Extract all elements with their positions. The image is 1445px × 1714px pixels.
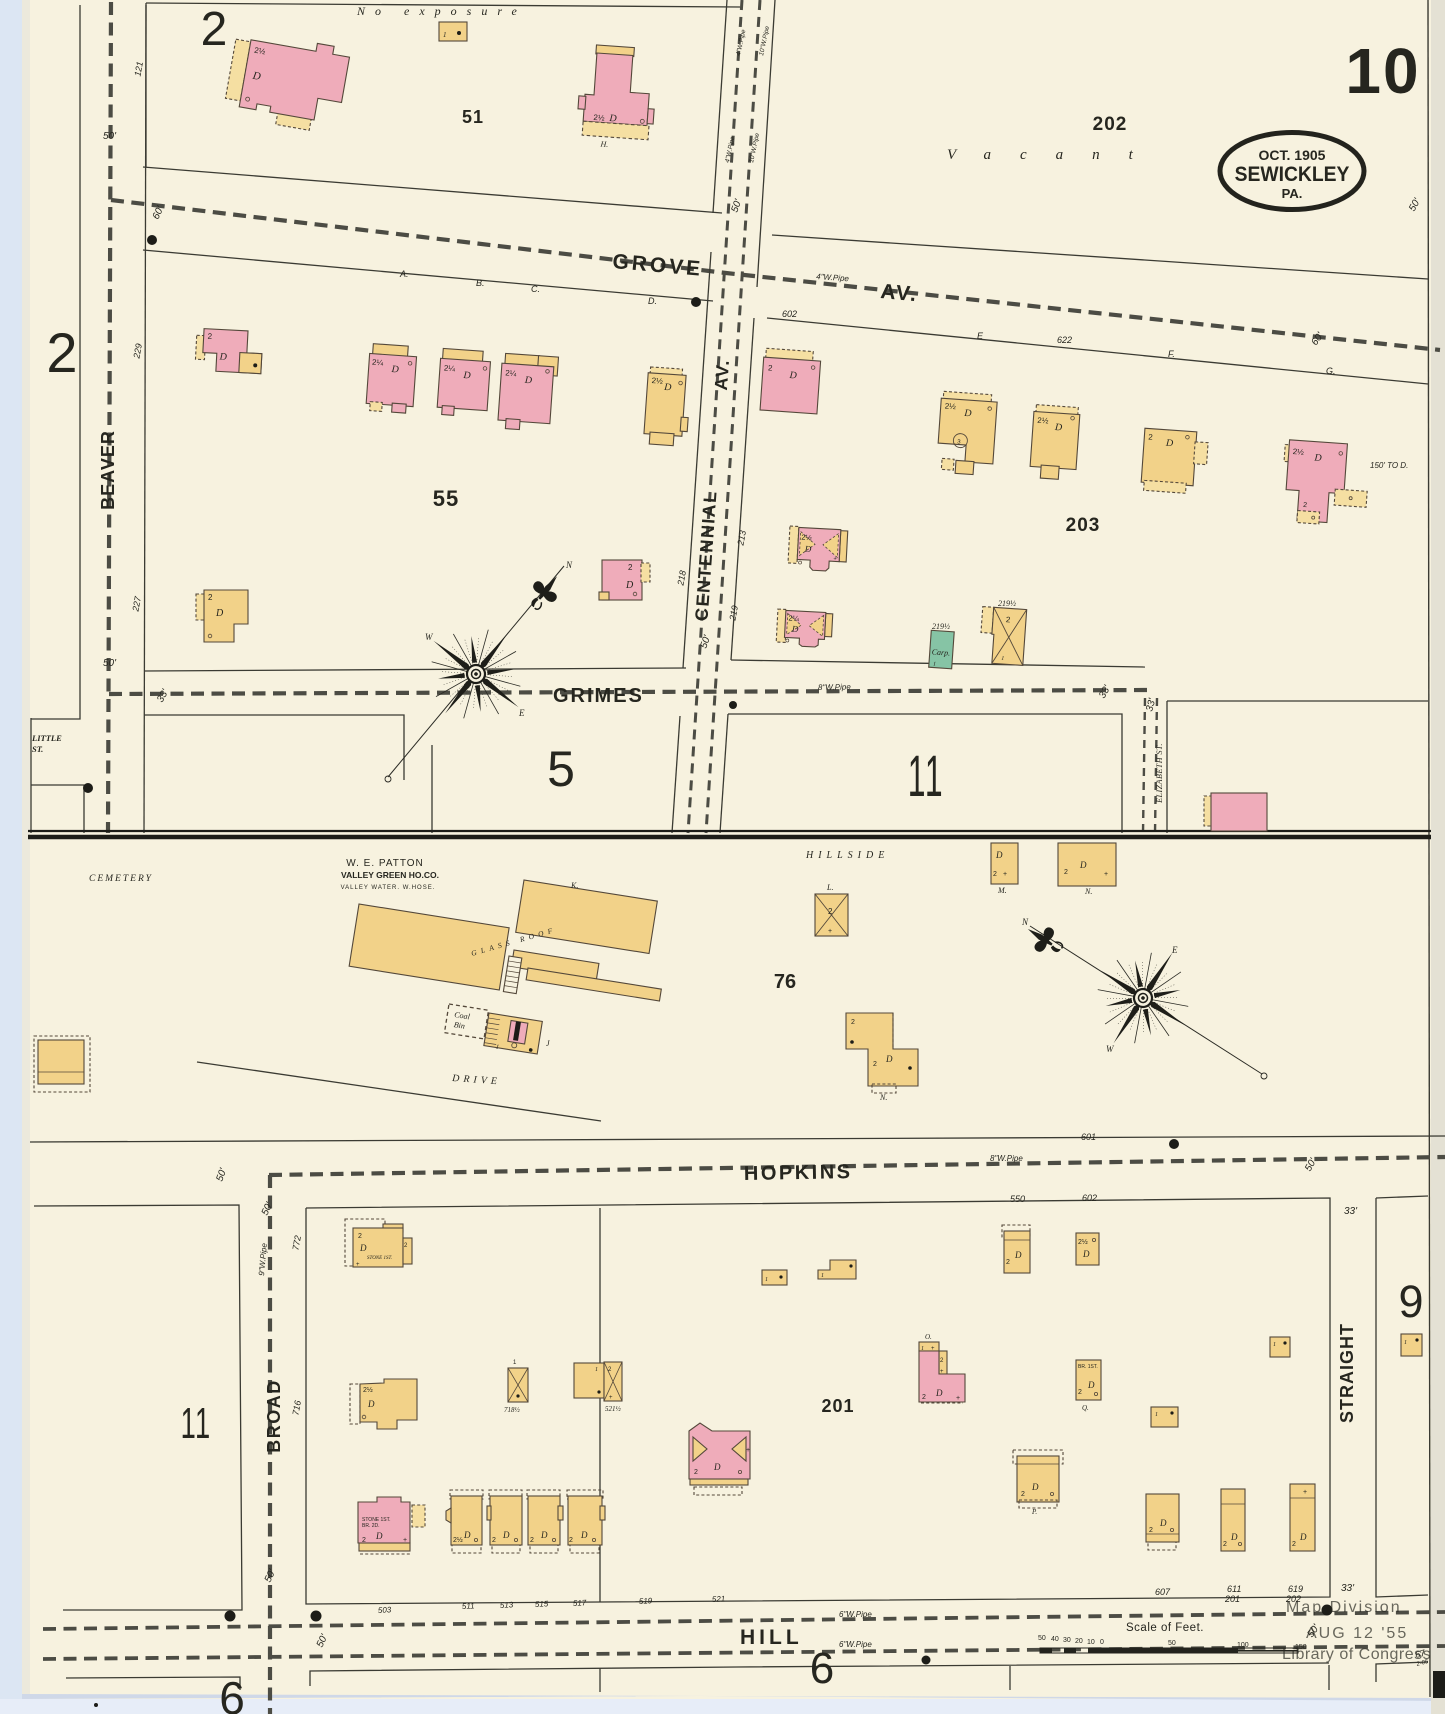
svg-text:2½: 2½	[944, 401, 956, 411]
svg-text:51: 51	[462, 107, 484, 127]
svg-text:2½: 2½	[1078, 1238, 1088, 1246]
svg-text:150' TO D.: 150' TO D.	[1370, 461, 1408, 470]
svg-text:SEWICKLEY: SEWICKLEY	[1235, 163, 1350, 186]
svg-text:2: 2	[208, 593, 213, 602]
svg-text:Library of Congress: Library of Congress	[1282, 1646, 1431, 1663]
svg-text:76: 76	[774, 971, 796, 993]
svg-text:D: D	[663, 382, 673, 394]
svg-text:2¼: 2¼	[444, 364, 456, 374]
svg-text:2½: 2½	[1037, 416, 1049, 426]
svg-text:201: 201	[1224, 1594, 1240, 1604]
svg-text:BROAD: BROAD	[264, 1379, 284, 1453]
svg-text:D: D	[462, 370, 472, 382]
svg-text:BR. 1ST.: BR. 1ST.	[1078, 1364, 1098, 1370]
svg-text:+: +	[931, 1346, 935, 1352]
svg-text:BR. 2D.: BR. 2D.	[362, 1523, 380, 1529]
svg-text:511: 511	[462, 1601, 475, 1611]
svg-text:E: E	[518, 708, 525, 718]
svg-text:+: +	[609, 1395, 613, 1401]
svg-text:OCT. 1905: OCT. 1905	[1259, 147, 1326, 163]
svg-text:D: D	[1230, 1532, 1238, 1542]
svg-text:2: 2	[1064, 869, 1068, 876]
svg-text:STRAIGHT: STRAIGHT	[1337, 1323, 1357, 1423]
svg-text:H.: H.	[599, 139, 608, 149]
svg-text:D: D	[935, 1388, 943, 1398]
svg-text:201: 201	[821, 1396, 854, 1416]
svg-text:521½: 521½	[605, 1405, 622, 1413]
svg-text:219½: 219½	[998, 599, 1016, 608]
svg-text:+: +	[1003, 871, 1007, 878]
svg-text:Carp.: Carp.	[931, 647, 950, 657]
svg-text:11: 11	[181, 1398, 212, 1447]
svg-text:LITTLE: LITTLE	[31, 733, 62, 743]
svg-text:D.: D.	[648, 296, 657, 306]
svg-text:D: D	[995, 850, 1003, 860]
svg-text:10: 10	[1345, 35, 1420, 107]
svg-text:2: 2	[873, 1061, 877, 1068]
svg-text:Map Division: Map Division	[1286, 1599, 1402, 1616]
svg-text:0: 0	[1100, 1639, 1104, 1646]
svg-text:602: 602	[1082, 1193, 1097, 1203]
svg-text:6"W.Pipe: 6"W.Pipe	[839, 1610, 872, 1619]
svg-text:D: D	[502, 1530, 510, 1540]
svg-text:D: D	[580, 1530, 588, 1540]
svg-text:D: D	[215, 608, 224, 619]
svg-text:L.: L.	[826, 883, 833, 892]
svg-text:2: 2	[628, 563, 633, 572]
svg-text:6"W.Pipe: 6"W.Pipe	[839, 1640, 872, 1649]
svg-text:Q.: Q.	[1082, 1404, 1089, 1412]
svg-text:STONE 1ST.: STONE 1ST.	[367, 1256, 392, 1261]
svg-text:VALLEY GREEN HO.CO.: VALLEY GREEN HO.CO.	[341, 870, 439, 880]
svg-text:M.: M.	[997, 886, 1007, 895]
svg-text:Scale of Feet.: Scale of Feet.	[1126, 1622, 1204, 1634]
svg-text:33': 33'	[1341, 1583, 1355, 1594]
svg-text:N: N	[565, 560, 573, 570]
svg-text:55: 55	[433, 486, 459, 511]
svg-text:219½: 219½	[932, 622, 950, 631]
svg-text:503: 503	[378, 1605, 392, 1615]
svg-text:N.: N.	[1084, 887, 1092, 896]
svg-text:513: 513	[500, 1600, 514, 1610]
svg-text:2: 2	[694, 1469, 698, 1476]
svg-text:2: 2	[1223, 1541, 1227, 1548]
svg-text:202: 202	[1093, 114, 1128, 135]
svg-text:D: D	[1087, 1380, 1095, 1390]
svg-text:D: D	[885, 1054, 893, 1064]
svg-text:N: N	[1021, 917, 1029, 927]
svg-text:5: 5	[547, 741, 575, 797]
svg-text:VALLEY WATER. W.HOSE.: VALLEY WATER. W.HOSE.	[341, 885, 436, 891]
svg-text:1: 1	[1273, 1342, 1276, 1348]
svg-text:2: 2	[828, 907, 833, 916]
svg-text:517: 517	[573, 1598, 587, 1608]
svg-text:PA.: PA.	[1282, 186, 1303, 201]
svg-text:CEMETERY: CEMETERY	[89, 874, 153, 884]
svg-text:D: D	[540, 1530, 548, 1540]
svg-text:Bin: Bin	[453, 1020, 465, 1031]
svg-text:D: D	[804, 544, 813, 554]
svg-text:D: D	[218, 351, 228, 362]
svg-text:607: 607	[1155, 1587, 1171, 1597]
svg-text:D: D	[523, 375, 533, 387]
svg-text:1: 1	[1001, 656, 1004, 662]
svg-text:50': 50'	[103, 131, 117, 142]
svg-text:D: D	[1014, 1250, 1022, 1260]
svg-text:2¼: 2¼	[372, 358, 384, 368]
svg-text:2½: 2½	[593, 113, 605, 123]
svg-text:2½: 2½	[651, 376, 663, 386]
svg-text:No exposure: No exposure	[356, 4, 527, 18]
svg-text:G.: G.	[1326, 366, 1336, 376]
svg-text:ELIZABETH ST.: ELIZABETH ST.	[1155, 743, 1164, 804]
svg-text:2: 2	[358, 1233, 362, 1240]
svg-text:E: E	[977, 331, 984, 341]
svg-text:D: D	[1313, 453, 1323, 465]
svg-text:1: 1	[1404, 1340, 1407, 1346]
svg-text:2½: 2½	[363, 1386, 373, 1394]
svg-text:F.: F.	[1168, 349, 1175, 359]
svg-text:D: D	[463, 1530, 471, 1540]
svg-text:D: D	[1165, 438, 1175, 450]
svg-text:D: D	[1053, 422, 1063, 434]
svg-text:2: 2	[569, 1537, 573, 1544]
svg-text:2½: 2½	[801, 533, 813, 543]
svg-text:2¼: 2¼	[788, 614, 800, 624]
svg-text:E: E	[1171, 945, 1178, 955]
svg-text:718½: 718½	[504, 1406, 521, 1414]
svg-text:8"W.Pipe: 8"W.Pipe	[990, 1154, 1023, 1163]
svg-text:2: 2	[1006, 1259, 1010, 1266]
svg-text:D: D	[390, 364, 400, 376]
svg-text:2: 2	[46, 321, 77, 384]
svg-text:AV.: AV.	[880, 280, 919, 306]
svg-text:B.: B.	[476, 278, 485, 288]
svg-text:+: +	[940, 1369, 944, 1375]
svg-text:20: 20	[1075, 1638, 1083, 1645]
svg-text:50: 50	[1168, 1640, 1176, 1647]
svg-text:1: 1	[933, 661, 936, 667]
svg-text:D: D	[1031, 1482, 1039, 1492]
svg-text:+: +	[828, 928, 832, 935]
svg-text:2½: 2½	[453, 1536, 463, 1544]
svg-text:602: 602	[782, 309, 797, 319]
svg-text:K.: K.	[570, 881, 578, 890]
svg-text:2: 2	[1303, 502, 1307, 509]
svg-text:50': 50'	[103, 658, 117, 669]
svg-text:ST.: ST.	[32, 744, 43, 754]
svg-text:2¼: 2¼	[505, 368, 517, 378]
svg-text:+: +	[746, 1447, 750, 1454]
svg-text:30: 30	[1063, 1637, 1071, 1644]
svg-text:611: 611	[1227, 1584, 1241, 1594]
svg-text:2: 2	[201, 3, 228, 56]
svg-text:AV.: AV.	[711, 358, 733, 391]
svg-text:622: 622	[1057, 335, 1072, 345]
svg-text:D: D	[359, 1243, 367, 1253]
svg-text:D: D	[713, 1462, 721, 1472]
svg-text:519: 519	[639, 1596, 653, 1606]
svg-text:D: D	[791, 624, 800, 634]
svg-text:AUG 12 '55: AUG 12 '55	[1306, 1625, 1408, 1642]
svg-text:D: D	[1082, 1249, 1090, 1259]
svg-text:D: D	[608, 113, 618, 125]
svg-text:D: D	[375, 1531, 383, 1541]
svg-text:A.: A.	[399, 269, 409, 279]
svg-text:GRIMES: GRIMES	[553, 685, 644, 707]
svg-text:6: 6	[219, 1672, 245, 1714]
svg-text:1: 1	[443, 31, 447, 39]
svg-text:2: 2	[492, 1537, 496, 1544]
svg-text:515: 515	[535, 1599, 549, 1609]
svg-text:11: 11	[908, 744, 944, 808]
svg-text:D: D	[788, 370, 798, 382]
svg-text:1: 1	[595, 1367, 598, 1373]
svg-text:D: D	[1079, 860, 1087, 870]
svg-text:2: 2	[1292, 1541, 1296, 1548]
svg-text:1: 1	[921, 1346, 924, 1352]
svg-text:O.: O.	[925, 1333, 932, 1341]
svg-text:2: 2	[362, 1537, 366, 1544]
svg-text:+: +	[403, 1537, 407, 1544]
svg-text:2: 2	[530, 1537, 534, 1544]
svg-text:619: 619	[1288, 1584, 1303, 1594]
svg-text:8"W.Pipe: 8"W.Pipe	[818, 682, 851, 692]
svg-text:2: 2	[1021, 1491, 1025, 1498]
svg-text:1: 1	[821, 1273, 824, 1279]
svg-text:HILLSIDE: HILLSIDE	[805, 850, 889, 861]
svg-text:P.: P.	[1031, 1508, 1037, 1516]
svg-text:D: D	[625, 580, 634, 591]
svg-text:D: D	[1159, 1518, 1167, 1528]
svg-text:1: 1	[765, 1277, 768, 1283]
svg-text:HOPKINS: HOPKINS	[744, 1161, 853, 1185]
svg-text:2: 2	[922, 1394, 926, 1401]
svg-text:2: 2	[1078, 1389, 1082, 1396]
svg-text:50: 50	[1038, 1635, 1046, 1642]
svg-text:HILL: HILL	[740, 1626, 803, 1649]
svg-text:Vacant: Vacant	[947, 147, 1162, 163]
svg-text:2: 2	[851, 1019, 855, 1026]
svg-text:W. E. PATTON: W. E. PATTON	[346, 858, 424, 869]
svg-text:2½: 2½	[1292, 447, 1304, 457]
svg-text:9: 9	[1398, 1276, 1423, 1327]
svg-text:J: J	[546, 1039, 550, 1048]
svg-text:550: 550	[1010, 1194, 1025, 1204]
svg-text:203: 203	[1066, 515, 1101, 536]
svg-text:6: 6	[810, 1644, 834, 1693]
svg-text:C.: C.	[531, 284, 540, 294]
svg-text:2: 2	[993, 871, 997, 878]
svg-text:D: D	[1299, 1532, 1307, 1542]
svg-text:10: 10	[1087, 1639, 1095, 1646]
svg-text:+: +	[1104, 871, 1108, 878]
svg-text:40: 40	[1051, 1636, 1059, 1643]
svg-text:521: 521	[712, 1594, 726, 1604]
svg-text:33': 33'	[1344, 1206, 1358, 1217]
svg-text:D: D	[367, 1399, 375, 1409]
svg-text:N.: N.	[879, 1093, 887, 1102]
svg-text:601: 601	[1081, 1132, 1096, 1142]
svg-text:BEAVER: BEAVER	[98, 430, 118, 510]
svg-text:D: D	[963, 408, 973, 420]
svg-text:+: +	[956, 1395, 960, 1402]
svg-text:+: +	[356, 1262, 360, 1268]
svg-text:+: +	[1303, 1489, 1307, 1496]
svg-text:2: 2	[1149, 1527, 1153, 1534]
svg-text:1: 1	[1155, 1412, 1158, 1418]
